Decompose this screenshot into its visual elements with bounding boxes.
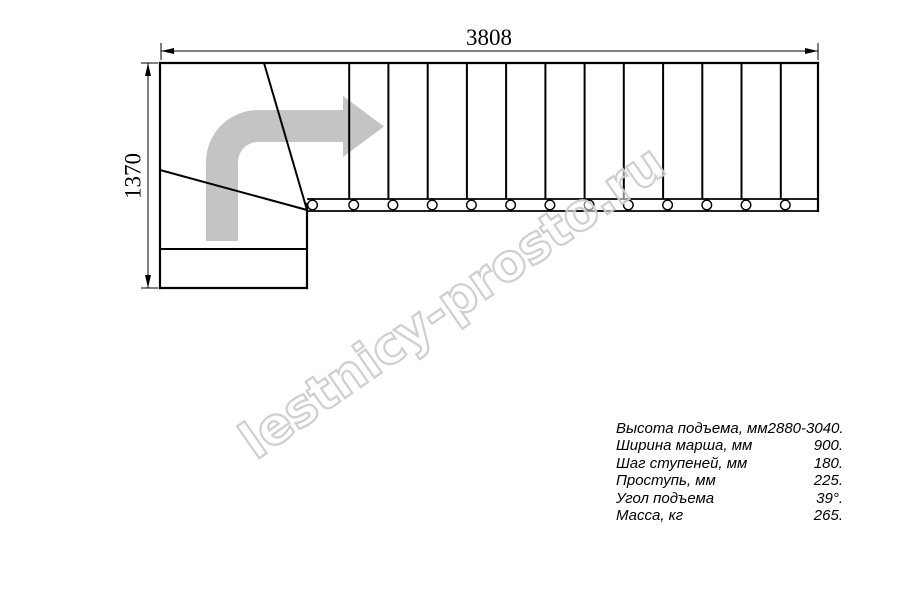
spec-value: 2880-3040. bbox=[768, 420, 844, 437]
spec-label: Ширина марша, мм bbox=[616, 437, 752, 454]
spec-row: Масса, кг 265. bbox=[616, 507, 843, 524]
spec-label: Шаг ступеней, мм bbox=[616, 455, 747, 472]
bolt-circle bbox=[349, 200, 359, 210]
watermark-text: lestnicy-prosto.ru bbox=[229, 134, 675, 471]
bolt-circle bbox=[308, 200, 318, 210]
spec-label: Проступь, мм bbox=[616, 472, 716, 489]
spec-value: 39°. bbox=[816, 490, 843, 507]
spec-value: 900. bbox=[814, 437, 843, 454]
bolt-circle bbox=[741, 200, 751, 210]
bolt-circle bbox=[467, 200, 477, 210]
spec-value: 265. bbox=[814, 507, 843, 524]
bolt-circle bbox=[663, 200, 673, 210]
height-dimension-label: 1370 bbox=[120, 153, 145, 199]
specs-table: Высота подъема, мм 2880-3040. Ширина мар… bbox=[616, 420, 843, 524]
dimension-arrowhead bbox=[145, 63, 151, 76]
spec-row: Высота подъема, мм 2880-3040. bbox=[616, 420, 843, 437]
height-dimension: 1370 bbox=[120, 63, 158, 288]
width-dimension-label: 3808 bbox=[466, 25, 512, 50]
spec-value: 225. bbox=[814, 472, 843, 489]
bolt-circle bbox=[702, 200, 712, 210]
bolt-circle bbox=[506, 200, 516, 210]
stair-plan-page: 3808 1370 lestnicy-prosto.ru Высота подъ… bbox=[0, 0, 900, 600]
dimension-arrowhead bbox=[805, 48, 818, 54]
spec-row: Шаг ступеней, мм 180. bbox=[616, 455, 843, 472]
dimension-arrowhead bbox=[145, 275, 151, 288]
spec-value: 180. bbox=[814, 455, 843, 472]
spec-label: Угол подъема bbox=[616, 490, 714, 507]
width-dimension: 3808 bbox=[161, 25, 818, 60]
spec-row: Проступь, мм 225. bbox=[616, 472, 843, 489]
spec-row: Ширина марша, мм 900. bbox=[616, 437, 843, 454]
spec-row: Угол подъема 39°. bbox=[616, 490, 843, 507]
bolt-circle bbox=[427, 200, 437, 210]
dimension-arrowhead bbox=[161, 48, 174, 54]
straight-tread-lines bbox=[349, 63, 781, 199]
spec-label: Высота подъема, мм bbox=[616, 420, 768, 437]
bolt-circle bbox=[781, 200, 791, 210]
bolt-circle bbox=[388, 200, 398, 210]
spec-label: Масса, кг bbox=[616, 507, 683, 524]
